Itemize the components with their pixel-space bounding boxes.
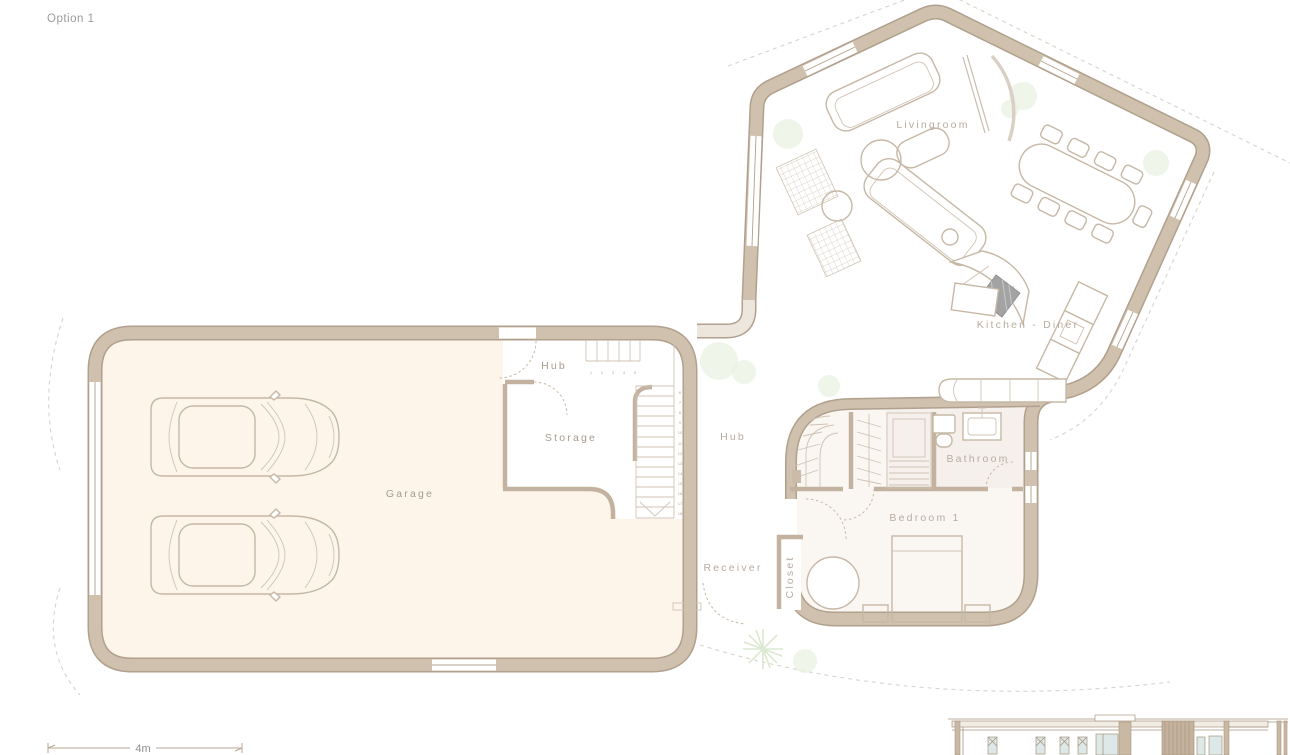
bathroom-label: Bathroom: [946, 453, 1009, 465]
dining-table: [1012, 137, 1143, 232]
parapet: [1095, 715, 1135, 721]
stair-number: 17: [678, 501, 683, 506]
floor-fills: [102, 340, 1025, 658]
receiver-door-arc: [703, 583, 745, 624]
round-chair: [807, 557, 859, 609]
plant-icon: [1143, 150, 1169, 176]
scale-bar: 4m: [48, 743, 242, 755]
curved-entry-door: [963, 55, 1014, 141]
garage-label: Garage: [386, 488, 434, 500]
post: [1284, 721, 1287, 755]
plant-icon: [773, 119, 803, 149]
plant-icon: [793, 649, 817, 673]
kitchen-island: [951, 283, 998, 316]
slat-cladding: [1162, 721, 1194, 755]
closet-label: Closet: [784, 556, 796, 599]
bedroom-label: Bedroom 1: [889, 512, 960, 524]
dining-set: [1004, 121, 1167, 256]
kitchen-label: Kitchen - Diner: [977, 319, 1079, 331]
livingroom-furniture: [776, 48, 1166, 276]
sink: [963, 408, 1001, 440]
stair-number: 16: [678, 491, 683, 496]
post: [1277, 721, 1281, 755]
sofa: [858, 153, 992, 272]
chair: [1132, 204, 1153, 228]
stair-number: 13: [678, 461, 683, 466]
toilet: [933, 415, 955, 447]
stair-number: 14: [678, 471, 683, 476]
star-plant-icon: [743, 629, 783, 669]
rug: [807, 219, 861, 277]
hub-corridor-label: Hub: [720, 431, 746, 443]
stair-number: 18: [678, 511, 683, 516]
pillar: [1119, 722, 1131, 755]
plant-icon: [1001, 100, 1019, 118]
elevation-window: [1209, 736, 1222, 755]
elevation-window: [1197, 737, 1205, 755]
roof-band: [952, 721, 1268, 727]
plant-icon: [818, 375, 840, 397]
floor-plan-page: 1 2 3 4 5 6 7 8 9 10 11 12 13 14 15 16 1…: [0, 0, 1290, 755]
stair-number: 10: [678, 430, 683, 435]
stair-number: 12: [678, 451, 683, 456]
wardrobe-base: [792, 470, 801, 483]
livingroom-label: Livingroom: [896, 119, 969, 131]
rug: [776, 149, 838, 215]
plant-icon: [732, 360, 756, 384]
storage-label: Storage: [545, 432, 597, 444]
lower-counter-row: [939, 379, 1066, 402]
side-table: [942, 229, 958, 245]
chair: [1090, 223, 1114, 244]
post: [1224, 721, 1229, 755]
elevation-windows: [988, 737, 1087, 754]
elevation-door: [1096, 734, 1118, 755]
stair-number: 15: [678, 481, 683, 486]
floor-plan-drawing: 1 2 3 4 5 6 7 8 9 10 11 12 13 14 15 16 1…: [0, 0, 1290, 755]
building-elevation: [948, 715, 1288, 755]
chair: [1039, 124, 1063, 145]
ottoman: [893, 124, 954, 172]
post: [955, 721, 960, 755]
page-title: Option 1: [47, 13, 94, 25]
scale-value: 4m: [135, 743, 150, 755]
hub-garage-label: Hub: [541, 360, 567, 372]
receiver-label: Receiver: [703, 562, 762, 574]
